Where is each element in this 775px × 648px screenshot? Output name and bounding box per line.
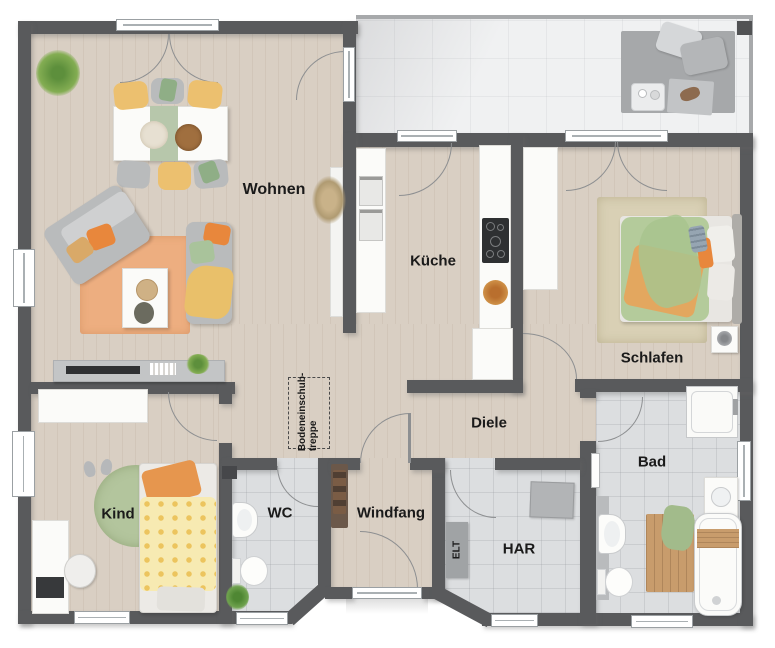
elt-label: ELT bbox=[452, 541, 463, 559]
kueche-window bbox=[397, 130, 457, 142]
bad-label: Bad bbox=[638, 454, 666, 471]
dining-chair-1 bbox=[113, 80, 150, 110]
wall-wohnen-kueche bbox=[343, 133, 356, 333]
terrace-tray-table bbox=[631, 83, 665, 111]
shower-inner bbox=[691, 391, 733, 433]
attic-stairs-label-line1: Bodeneinschub- bbox=[297, 373, 308, 451]
kind-bottom-window bbox=[74, 611, 130, 624]
wc-label: WC bbox=[268, 505, 293, 522]
cooktop-burner-5 bbox=[497, 250, 505, 258]
bad-toilet-bowl bbox=[605, 567, 633, 597]
windfang-label: Windfang bbox=[357, 505, 425, 522]
wohnen-terrace-door bbox=[343, 47, 355, 102]
wall-windfang-north-right bbox=[410, 458, 445, 470]
bathtub-caddy bbox=[697, 529, 739, 548]
wall-entry-jamb-left bbox=[325, 587, 353, 599]
schlafen-terrace-door bbox=[565, 130, 668, 142]
bad-sink-left-basin bbox=[604, 521, 620, 547]
terrace-pot bbox=[650, 90, 660, 100]
har-window bbox=[491, 614, 538, 627]
wall-windfang-east bbox=[432, 458, 445, 598]
har-label: HAR bbox=[503, 541, 536, 558]
bad-bottom-window bbox=[631, 615, 693, 628]
kind-left-window bbox=[12, 431, 35, 497]
terrace-cup bbox=[638, 89, 647, 98]
kitchen-microwave bbox=[359, 209, 383, 241]
table-flowers bbox=[140, 121, 168, 149]
coat-rack-items bbox=[333, 470, 346, 514]
fruit-bowl bbox=[483, 280, 508, 305]
kind-bed-pillow-white bbox=[157, 586, 206, 612]
bad-radiator bbox=[591, 453, 600, 488]
wall-diele-bad-upper bbox=[580, 390, 596, 398]
wall-kind-stub bbox=[219, 382, 232, 404]
kind-bed-duvet bbox=[140, 497, 216, 591]
sofa-right-throw bbox=[183, 264, 234, 321]
sideboard-tv bbox=[66, 366, 140, 374]
kind-monitor bbox=[36, 577, 64, 598]
bed-pillow-white-2 bbox=[707, 263, 735, 301]
kind-wardrobe bbox=[38, 389, 148, 423]
terrace-post bbox=[737, 21, 752, 35]
wall-wc-duct-block bbox=[222, 466, 237, 479]
dining-chair-4 bbox=[116, 160, 151, 189]
dining-chair-3 bbox=[187, 79, 224, 109]
shower-fixture bbox=[733, 399, 738, 415]
terrace-shade bbox=[356, 19, 516, 135]
schlafen-wardrobe bbox=[523, 147, 558, 290]
attic-stairs-label: Bodeneinschub- treppe bbox=[297, 373, 319, 451]
wohnen-top-window bbox=[116, 19, 219, 31]
cooktop-burner-3 bbox=[490, 236, 501, 247]
wohnen-dried-plant bbox=[312, 176, 346, 224]
nightstand-vase bbox=[717, 331, 732, 346]
wc-window bbox=[236, 612, 288, 625]
dining-chair-5 bbox=[158, 162, 191, 190]
front-door bbox=[352, 587, 422, 599]
wohnen-left-window bbox=[13, 249, 35, 307]
kueche-label: Küche bbox=[410, 253, 456, 270]
kitchen-oven bbox=[359, 176, 383, 206]
table-bowl bbox=[175, 124, 202, 151]
wohnen-label: Wohnen bbox=[243, 181, 306, 199]
floor-plan: ELT Bodeneinschub- treppe Wohnen Küche S… bbox=[0, 0, 775, 648]
sideboard-plant bbox=[186, 354, 210, 374]
bathtub-drain bbox=[712, 596, 721, 605]
schlafen-label: Schlafen bbox=[621, 350, 684, 367]
wohnen-plant bbox=[36, 50, 80, 96]
sofa-right-pillow-green bbox=[189, 239, 216, 264]
cooktop-burner-2 bbox=[497, 224, 504, 231]
coffee-table-bowl bbox=[136, 279, 158, 301]
attic-stairs-label-line2: treppe bbox=[308, 373, 319, 451]
wall-outer-left bbox=[18, 21, 31, 624]
wall-kueche-south bbox=[407, 380, 523, 393]
kind-label: Kind bbox=[101, 506, 134, 523]
wall-har-north bbox=[495, 458, 580, 470]
wc-toilet-bowl bbox=[240, 556, 268, 586]
har-washer bbox=[529, 481, 574, 519]
bad-vanity-sink bbox=[711, 487, 731, 507]
wc-sink-basin bbox=[237, 509, 252, 531]
bad-right-window bbox=[737, 441, 751, 501]
coffee-table-vase bbox=[134, 302, 154, 324]
wall-wc-right bbox=[318, 458, 331, 593]
windfang-diele-door-leaf bbox=[408, 413, 411, 463]
diele-label: Diele bbox=[471, 415, 507, 432]
cooktop-burner-4 bbox=[486, 250, 494, 258]
entry-porch-shadow bbox=[346, 599, 428, 614]
kitchen-south-cabinet bbox=[472, 328, 513, 380]
terrace-edge-top bbox=[356, 15, 753, 19]
sideboard-books bbox=[150, 363, 176, 375]
wc-plant bbox=[226, 584, 249, 610]
kind-desk-chair bbox=[64, 554, 96, 588]
cooktop-burner-1 bbox=[486, 222, 495, 231]
